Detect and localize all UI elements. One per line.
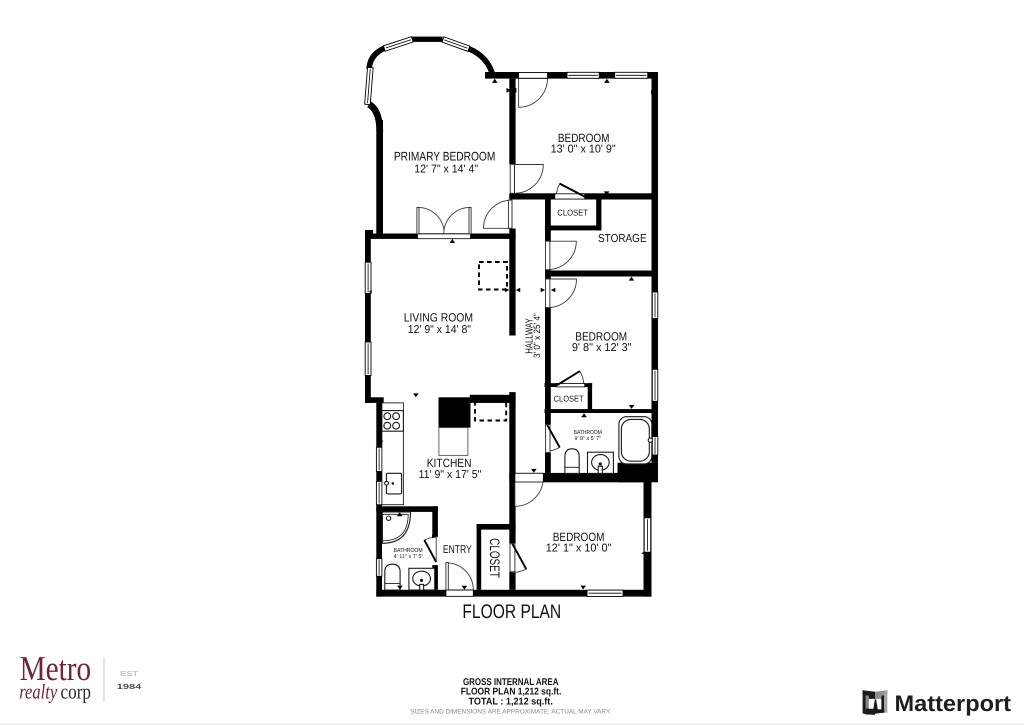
svg-text:FLOOR PLAN: FLOOR PLAN — [462, 601, 561, 623]
svg-text:BATHROOM: BATHROOM — [574, 429, 602, 436]
svg-text:STORAGE: STORAGE — [598, 232, 647, 245]
svg-text:ENTRY: ENTRY — [443, 544, 472, 556]
svg-text:realty: realty — [19, 680, 58, 704]
svg-text:12' 7" x 14' 4": 12' 7" x 14' 4" — [414, 163, 478, 175]
svg-text:13' 0" x 10' 9": 13' 0" x 10' 9" — [551, 144, 616, 156]
svg-text:4' 11" x 7' 5": 4' 11" x 7' 5" — [394, 554, 424, 560]
svg-text:12' 9" x 14' 8": 12' 9" x 14' 8" — [408, 324, 471, 336]
svg-text:corp: corp — [61, 680, 92, 704]
svg-text:Matterport: Matterport — [895, 691, 1012, 716]
svg-text:SIZES AND DIMENSIONS ARE APPRO: SIZES AND DIMENSIONS ARE APPROXIMATE, AC… — [410, 709, 611, 716]
svg-text:3' 0" x 25' 4": 3' 0" x 25' 4" — [532, 313, 542, 358]
svg-text:CLOSET: CLOSET — [554, 394, 584, 404]
svg-text:11' 9" x 17' 5": 11' 9" x 17' 5" — [419, 469, 482, 481]
svg-text:TOTAL : 1,212 sq.ft.: TOTAL : 1,212 sq.ft. — [469, 696, 554, 707]
svg-text:12' 1" x 10' 0": 12' 1" x 10' 0" — [546, 543, 612, 555]
svg-text:BATHROOM: BATHROOM — [394, 547, 423, 554]
svg-text:CLOSET: CLOSET — [487, 538, 502, 578]
svg-text:CLOSET: CLOSET — [557, 208, 588, 218]
svg-text:1984: 1984 — [117, 682, 143, 691]
svg-text:PRIMARY BEDROOM: PRIMARY BEDROOM — [394, 149, 496, 163]
svg-text:EST: EST — [120, 669, 139, 678]
svg-text:9' 8" x 12' 3": 9' 8" x 12' 3" — [572, 342, 632, 354]
svg-text:LIVING ROOM: LIVING ROOM — [404, 310, 473, 324]
svg-text:9' 8" x 5' 7": 9' 8" x 5' 7" — [575, 436, 602, 442]
